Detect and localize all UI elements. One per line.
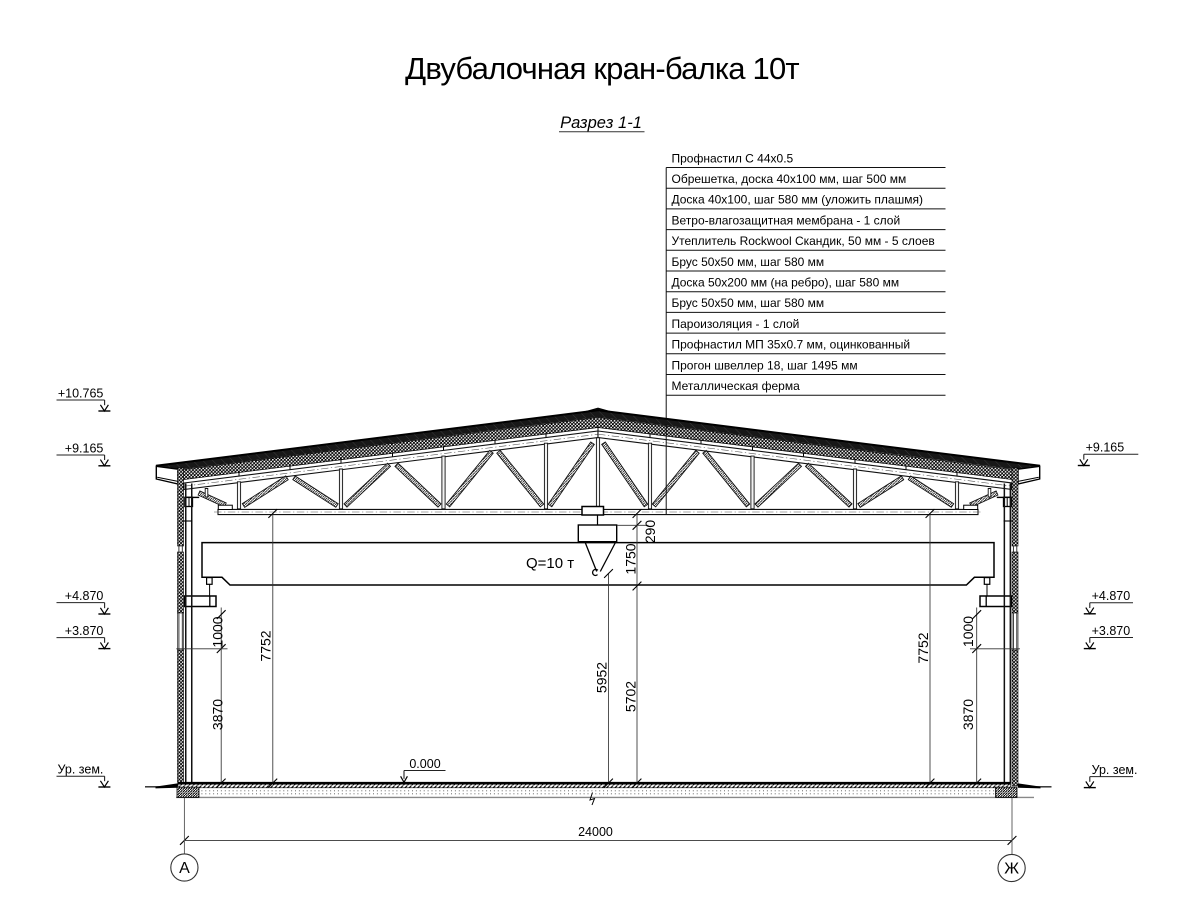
svg-text:Ур. зем.: Ур. зем. bbox=[1092, 763, 1138, 777]
svg-text:+9.165: +9.165 bbox=[1086, 441, 1125, 455]
svg-text:24000: 24000 bbox=[578, 825, 613, 839]
svg-text:7752: 7752 bbox=[915, 632, 931, 663]
svg-text:Металлическая ферма: Металлическая ферма bbox=[672, 379, 801, 393]
svg-text:5702: 5702 bbox=[623, 681, 639, 712]
svg-text:Брус 50х50 мм, шаг 580 мм: Брус 50х50 мм, шаг 580 мм bbox=[672, 255, 825, 269]
svg-text:Утеплитель Rockwool Скандик, 5: Утеплитель Rockwool Скандик, 50 мм - 5 с… bbox=[672, 234, 935, 248]
svg-text:Ур. зем.: Ур. зем. bbox=[58, 763, 104, 777]
svg-text:Профнастил МП 35х0.7 мм, оцинк: Профнастил МП 35х0.7 мм, оцинкованный bbox=[672, 338, 911, 352]
svg-text:Обрешетка, доска 40х100 мм, ша: Обрешетка, доска 40х100 мм, шаг 500 мм bbox=[672, 172, 907, 186]
svg-text:А: А bbox=[179, 860, 190, 877]
svg-text:Брус 50х50 мм, шаг 580 мм: Брус 50х50 мм, шаг 580 мм bbox=[672, 296, 825, 310]
svg-text:7752: 7752 bbox=[258, 630, 274, 661]
svg-text:Доска 40х100, шаг 580 мм (улож: Доска 40х100, шаг 580 мм (уложить плашмя… bbox=[672, 193, 923, 207]
svg-text:Разрез 1-1: Разрез 1-1 bbox=[560, 114, 642, 132]
svg-text:Профнастил С 44х0.5: Профнастил С 44х0.5 bbox=[672, 151, 794, 165]
svg-text:+3.870: +3.870 bbox=[65, 624, 104, 638]
svg-text:3870: 3870 bbox=[210, 699, 226, 730]
svg-text:Q=10 т: Q=10 т bbox=[526, 555, 574, 572]
svg-text:1000: 1000 bbox=[960, 616, 976, 647]
svg-text:Ж: Ж bbox=[1004, 861, 1019, 878]
svg-text:Прогон швеллер 18, шаг 1495 мм: Прогон швеллер 18, шаг 1495 мм bbox=[672, 358, 858, 372]
svg-text:+4.870: +4.870 bbox=[65, 589, 104, 603]
svg-text:1000: 1000 bbox=[210, 616, 226, 647]
svg-text:+3.870: +3.870 bbox=[1092, 624, 1131, 638]
svg-text:Ветро-влагозащитная мембрана -: Ветро-влагозащитная мембрана - 1 слой bbox=[672, 213, 901, 227]
svg-text:Доска 50х200 мм (на ребро), ша: Доска 50х200 мм (на ребро), шаг 580 мм bbox=[672, 276, 900, 290]
svg-text:Двубалочная кран-балка 10т: Двубалочная кран-балка 10т bbox=[405, 51, 799, 86]
svg-text:+4.870: +4.870 bbox=[1092, 589, 1131, 603]
svg-text:+10.765: +10.765 bbox=[58, 386, 104, 400]
svg-text:3870: 3870 bbox=[960, 699, 976, 730]
svg-text:5952: 5952 bbox=[594, 662, 610, 693]
svg-text:0.000: 0.000 bbox=[409, 757, 440, 771]
svg-text:1750: 1750 bbox=[623, 543, 639, 574]
svg-text:290: 290 bbox=[642, 520, 658, 544]
svg-text:+9.165: +9.165 bbox=[65, 441, 104, 455]
svg-text:Пароизоляция - 1 слой: Пароизоляция - 1 слой bbox=[672, 317, 800, 331]
